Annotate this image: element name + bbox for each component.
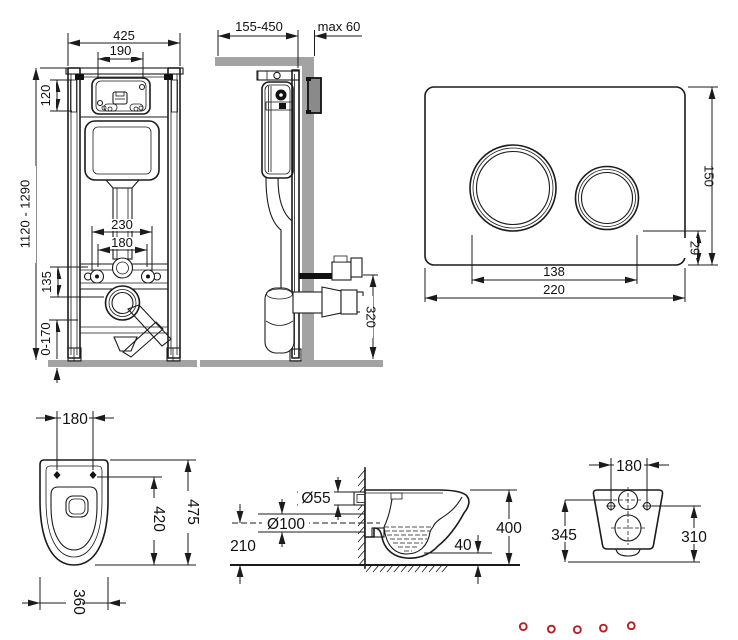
frame-side-view: 155-450 max 60 320 — [200, 19, 383, 367]
dim-fixing-outer: 230 — [111, 217, 133, 232]
technical-drawing-sheet: 425 190 120 1120 - 1290 230 180 135 — [0, 0, 738, 640]
dim-foot-adjust: 0-170 — [38, 322, 53, 355]
big-flush-button — [470, 145, 556, 231]
dim-wall-max: max 60 — [318, 19, 361, 34]
dim-frame-width: 425 — [113, 28, 135, 43]
dim-opening-width: 190 — [110, 43, 132, 58]
drawing-canvas: 425 190 120 1120 - 1290 230 180 135 — [0, 0, 738, 640]
dim-plate-width: 220 — [543, 282, 565, 297]
floor-hatch — [366, 565, 448, 572]
logo-watermark: Б Б Б У У У Х Х Х Т Т Т А А А — [523, 624, 632, 632]
dim-outlet-height: 210 — [230, 538, 256, 555]
bowl-top-view: 180 475 420 360 — [22, 410, 201, 622]
dim-plate-height: 150 — [702, 165, 717, 187]
wall-hatch — [358, 470, 365, 566]
dim-depth-range: 155-450 — [235, 19, 283, 34]
dim-bowl-length: 475 — [184, 499, 201, 525]
dim-button-offset: 29 — [688, 241, 703, 255]
dim-fixing: 180 — [111, 235, 133, 250]
dim-opening-height: 120 — [38, 85, 53, 107]
dim-outlet-diameter: Ø100 — [267, 516, 305, 533]
dim-drain-offset: 135 — [39, 271, 54, 293]
bowl-side-view: Ø55 Ø100 210 40 400 — [230, 468, 523, 584]
svg-text:А: А — [631, 624, 632, 627]
dim-rear-right-height: 310 — [681, 529, 707, 546]
countertop — [215, 57, 314, 66]
svg-text:У: У — [551, 628, 552, 630]
dim-frame-height: 1120 - 1290 — [18, 180, 33, 248]
svg-text:Х: Х — [577, 629, 578, 631]
dim-bowl-width: 360 — [70, 589, 87, 615]
dim-floor-gap: 40 — [454, 537, 472, 554]
frame-front-view: 425 190 120 1120 - 1290 230 180 135 — [18, 28, 198, 383]
svg-text:Б: Б — [523, 626, 524, 628]
dim-bowl-height: 400 — [496, 520, 522, 537]
dim-button-span: 138 — [543, 264, 565, 279]
dim-seat-length: 420 — [150, 506, 167, 532]
flush-plate-view: 150 29 138 220 — [425, 87, 718, 302]
dim-inlet-diameter: Ø55 — [301, 490, 330, 507]
dim-drain-height: 320 — [364, 306, 379, 328]
small-flush-button — [576, 167, 639, 230]
dim-rear-fixing: 180 — [616, 458, 642, 475]
dim-rear-left-height: 345 — [551, 527, 577, 544]
plate-mounting-box — [308, 78, 321, 113]
dim-bowl-fixing: 180 — [62, 411, 88, 428]
svg-text:Т: Т — [603, 628, 604, 630]
bowl-rear-view: 180 345 310 — [549, 457, 710, 562]
